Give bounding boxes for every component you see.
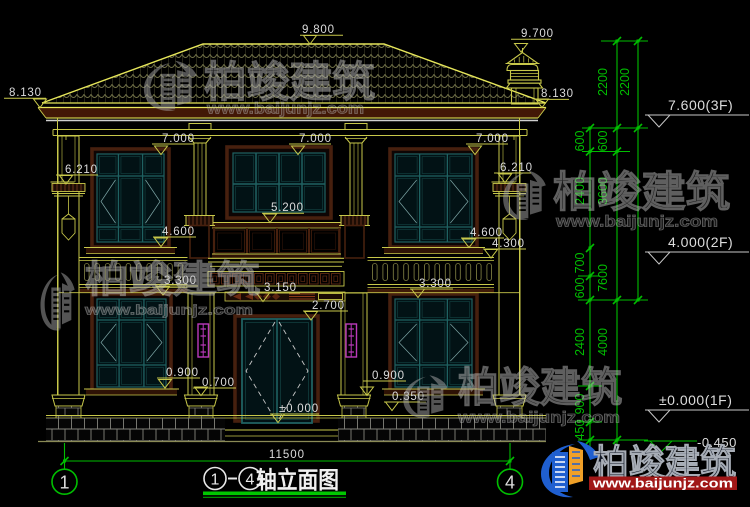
svg-text:www.baijunjz.com: www.baijunjz.com [84, 302, 253, 317]
svg-text:柏竣建筑: 柏竣建筑 [458, 365, 622, 411]
svg-text:www.baijunjz.com: www.baijunjz.com [555, 214, 718, 231]
svg-text:7.000: 7.000 [299, 133, 332, 145]
svg-text:2400: 2400 [573, 328, 587, 356]
svg-text:柏竣建筑: 柏竣建筑 [204, 59, 375, 106]
svg-text:4: 4 [505, 473, 515, 493]
svg-text:2200: 2200 [618, 68, 632, 96]
svg-text:6.210: 6.210 [500, 162, 533, 174]
svg-text:600: 600 [573, 278, 587, 299]
svg-text:轴立面图: 轴立面图 [256, 466, 339, 493]
svg-text:0.900: 0.900 [372, 370, 405, 382]
svg-text:9.800: 9.800 [302, 24, 335, 36]
svg-text:±0.000: ±0.000 [279, 403, 319, 415]
svg-text:2200: 2200 [596, 68, 610, 96]
svg-text:7600: 7600 [596, 264, 610, 292]
svg-text:6.210: 6.210 [65, 164, 98, 176]
svg-text:柏竣建筑: 柏竣建筑 [85, 258, 260, 300]
svg-text:600: 600 [596, 131, 610, 152]
svg-text:2.700: 2.700 [312, 300, 345, 312]
svg-text:9.700: 9.700 [521, 28, 554, 40]
svg-text:www.baijunjz.com: www.baijunjz.com [457, 410, 620, 427]
svg-text:8.130: 8.130 [541, 88, 574, 100]
svg-text:4.600: 4.600 [162, 226, 195, 238]
svg-text:8.130: 8.130 [9, 87, 42, 99]
svg-text:柏竣建筑: 柏竣建筑 [553, 169, 730, 216]
svg-text:www.baijunjz.com: www.baijunjz.com [592, 477, 733, 491]
svg-text:7.000: 7.000 [476, 133, 509, 145]
svg-text:4.000(2F): 4.000(2F) [668, 234, 733, 250]
svg-text:600: 600 [573, 131, 587, 152]
svg-text:www.baijunjz.com: www.baijunjz.com [206, 101, 364, 118]
svg-text:4: 4 [246, 472, 255, 489]
svg-text:1: 1 [59, 473, 69, 493]
svg-text:4000: 4000 [596, 328, 610, 356]
svg-text:3.150: 3.150 [264, 282, 297, 294]
svg-text:11500: 11500 [269, 449, 305, 461]
svg-text:7.600(3F): 7.600(3F) [668, 97, 733, 113]
svg-text:3.300: 3.300 [419, 278, 452, 290]
svg-text:±0.000(1F): ±0.000(1F) [659, 392, 732, 408]
svg-text:5.200: 5.200 [271, 202, 304, 214]
svg-text:700: 700 [573, 253, 587, 274]
svg-text:4.300: 4.300 [492, 238, 525, 250]
svg-text:1: 1 [211, 472, 220, 489]
svg-text:0.900: 0.900 [166, 367, 199, 379]
svg-text:7.000: 7.000 [162, 133, 195, 145]
